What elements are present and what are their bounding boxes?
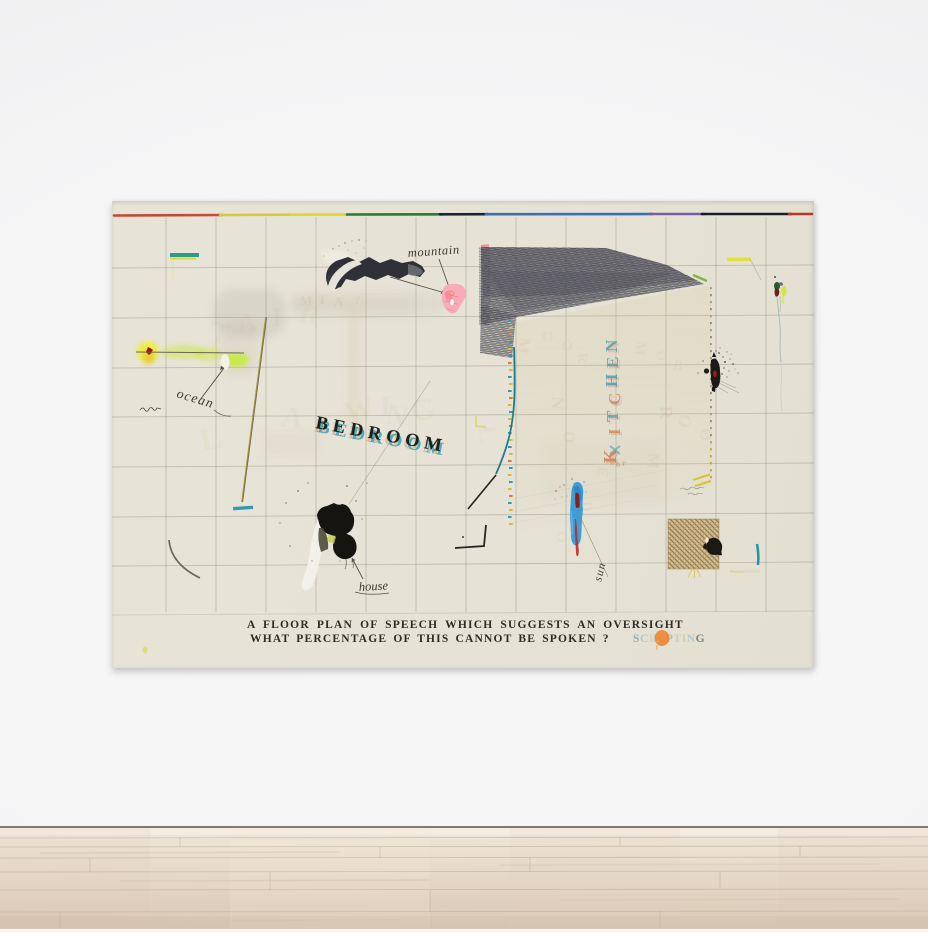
svg-text:sun: sun xyxy=(592,561,608,583)
svg-text:N: N xyxy=(602,339,621,352)
svg-text:L: L xyxy=(652,633,660,645)
svg-text:O: O xyxy=(553,531,569,543)
svg-text:r: r xyxy=(622,458,626,468)
svg-text:K: K xyxy=(600,449,620,463)
svg-text:H: H xyxy=(602,374,621,387)
svg-text:mountain: mountain xyxy=(407,242,460,260)
svg-text:house: house xyxy=(358,578,388,594)
svg-text:WHAT PERCENTAGE OF THIS CANNOT: WHAT PERCENTAGE OF THIS CANNOT BE SPOKEN… xyxy=(250,633,610,645)
svg-text:T: T xyxy=(603,410,622,422)
svg-text:C: C xyxy=(605,393,624,405)
svg-text:A FLOOR PLAN OF SPEECH WHICH S: A FLOOR PLAN OF SPEECH WHICH SUGGESTS AN… xyxy=(247,619,684,631)
svg-text:L: L xyxy=(197,419,224,458)
svg-text:A: A xyxy=(279,400,305,436)
svg-text:ocean: ocean xyxy=(175,386,216,412)
svg-text:I: I xyxy=(605,428,624,435)
svg-text:G: G xyxy=(409,391,437,428)
svg-text:E: E xyxy=(603,357,622,368)
